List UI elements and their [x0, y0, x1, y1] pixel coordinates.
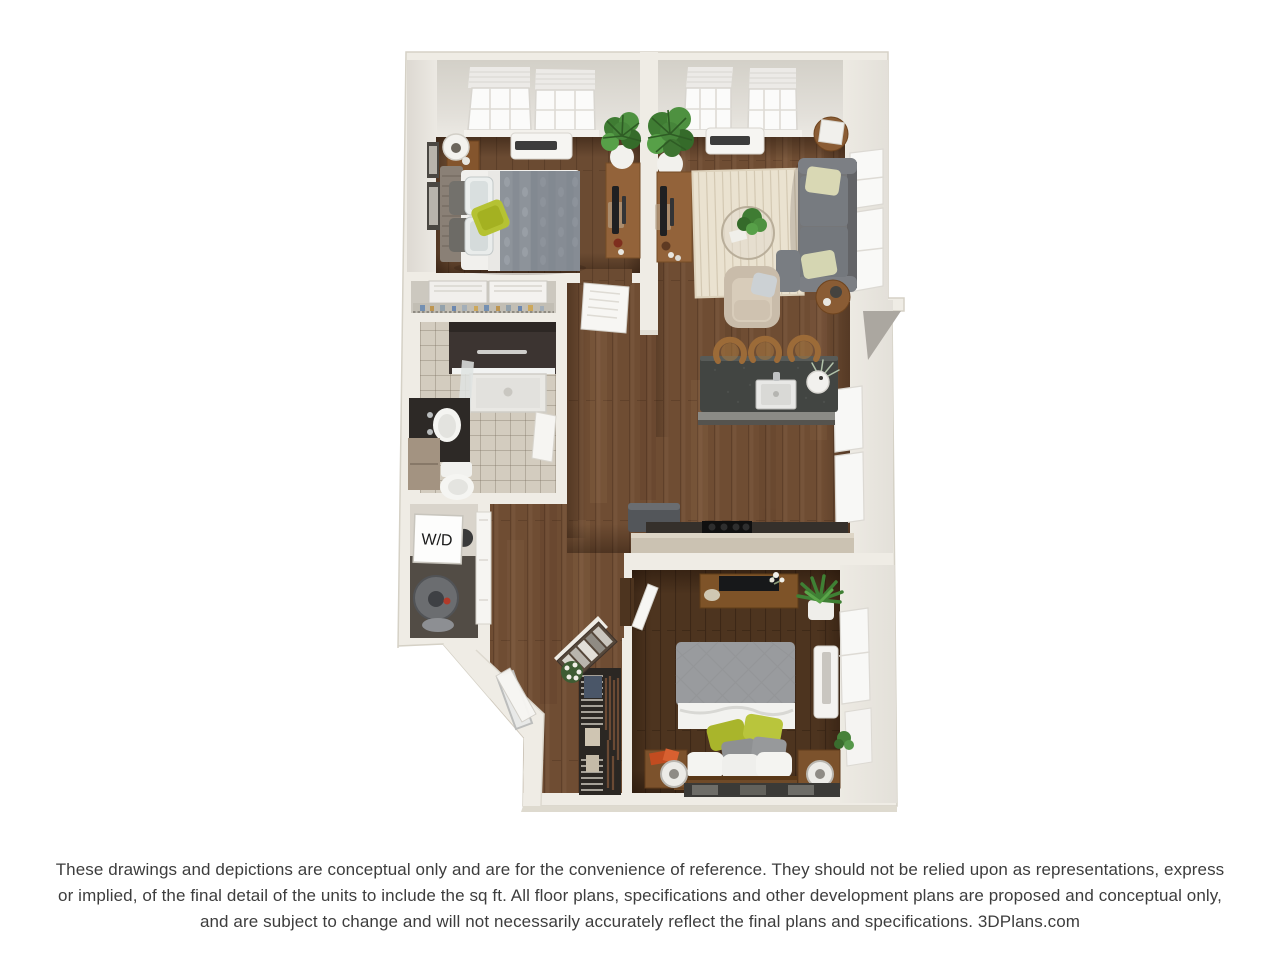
svg-text:W/D: W/D	[421, 531, 453, 549]
